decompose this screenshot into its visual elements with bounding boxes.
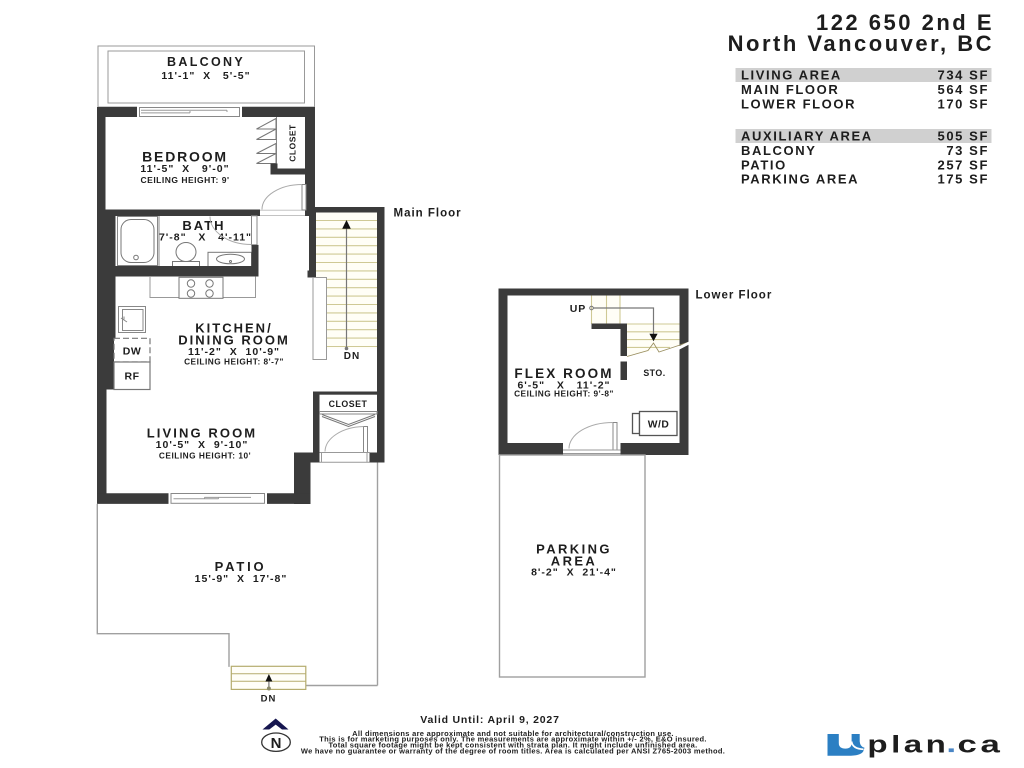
- svg-text:plan: plan: [867, 732, 949, 759]
- svg-text:MAIN FLOOR: MAIN FLOOR: [741, 82, 839, 97]
- svg-text:DW: DW: [123, 346, 142, 358]
- svg-text:257 SF: 257 SF: [937, 157, 989, 172]
- svg-text:15'-9" X 17'-8": 15'-9" X 17'-8": [195, 573, 288, 585]
- svg-text:DN: DN: [261, 694, 277, 705]
- svg-text:PARKING AREA: PARKING AREA: [741, 172, 859, 187]
- svg-text:LIVING AREA: LIVING AREA: [741, 68, 842, 83]
- svg-text:LOWER FLOOR: LOWER FLOOR: [741, 96, 856, 111]
- svg-text:Lower Floor: Lower Floor: [696, 290, 773, 302]
- svg-text:Main Floor: Main Floor: [394, 208, 462, 220]
- svg-text:564 SF: 564 SF: [937, 82, 989, 97]
- svg-text:PATIO: PATIO: [741, 157, 787, 172]
- svg-text:10'-5" X 9'-10": 10'-5" X 9'-10": [156, 439, 249, 451]
- svg-text:7'-8" X 4'-11": 7'-8" X 4'-11": [159, 232, 252, 244]
- svg-text:North Vancouver, BC: North Vancouver, BC: [728, 31, 994, 56]
- svg-text:PATIO: PATIO: [215, 559, 267, 574]
- svg-text:175 SF: 175 SF: [937, 172, 989, 187]
- svg-text:505 SF: 505 SF: [937, 129, 989, 144]
- svg-text:11'-1" X 5'-5": 11'-1" X 5'-5": [161, 70, 250, 82]
- svg-text:Valid Until: April 9, 2027: Valid Until: April 9, 2027: [420, 714, 559, 726]
- svg-text:8'-2" X 21'-4": 8'-2" X 21'-4": [531, 567, 617, 579]
- svg-text:170 SF: 170 SF: [937, 96, 989, 111]
- svg-text:CEILING HEIGHT: 9'-8": CEILING HEIGHT: 9'-8": [514, 388, 614, 398]
- svg-text:BATH: BATH: [182, 218, 225, 233]
- svg-text:UP: UP: [570, 303, 587, 315]
- svg-text:CEILING HEIGHT: 9': CEILING HEIGHT: 9': [141, 175, 230, 185]
- svg-text:ca: ca: [958, 731, 1004, 757]
- svg-text:CEILING HEIGHT: 8'-7": CEILING HEIGHT: 8'-7": [184, 357, 284, 367]
- svg-text:CLOSET: CLOSET: [288, 124, 298, 162]
- svg-text:We have no guarantee or warran: We have no guarantee or warranty of the …: [301, 747, 725, 756]
- svg-text:BALCONY: BALCONY: [167, 55, 245, 69]
- svg-text:AUXILIARY AREA: AUXILIARY AREA: [741, 129, 873, 144]
- svg-text:73 SF: 73 SF: [946, 143, 989, 158]
- svg-text:STO.: STO.: [643, 368, 665, 378]
- svg-text:W/D: W/D: [648, 420, 670, 431]
- svg-text:RF: RF: [125, 371, 140, 383]
- svg-text:CEILING HEIGHT: 10': CEILING HEIGHT: 10': [159, 450, 251, 460]
- svg-text:CLOSET: CLOSET: [329, 399, 368, 409]
- svg-text:734 SF: 734 SF: [937, 68, 989, 83]
- svg-text:BALCONY: BALCONY: [741, 143, 816, 158]
- svg-text:DN: DN: [344, 351, 360, 362]
- svg-text:11'-5" X 9'-0": 11'-5" X 9'-0": [140, 163, 229, 175]
- svg-text:N: N: [271, 735, 282, 752]
